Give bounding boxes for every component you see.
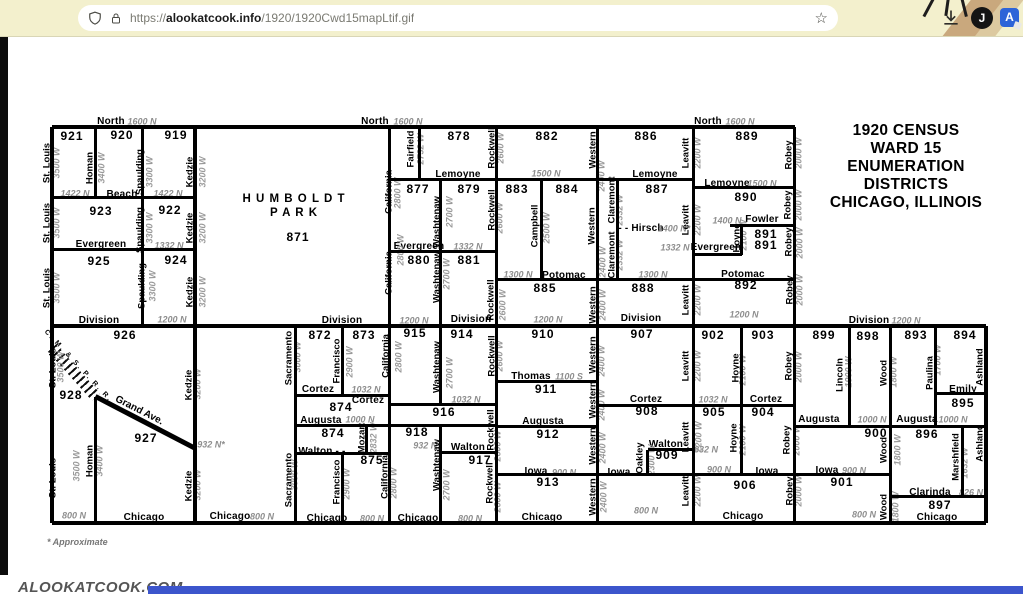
street-line <box>439 426 442 523</box>
coordinate-label: 1000 N <box>857 416 886 425</box>
district-number: 910 <box>531 328 554 340</box>
district-number: 893 <box>904 329 927 341</box>
park-label-line2: P A R K <box>243 206 346 220</box>
street-label: Fairfield <box>406 131 416 168</box>
street-line <box>495 127 498 523</box>
map-title-line: WARD 15 <box>830 140 982 158</box>
lock-icon <box>110 11 122 26</box>
street-line <box>388 127 391 523</box>
district-number: 896 <box>915 428 938 440</box>
street-line <box>891 495 986 498</box>
district-number: 897 <box>928 499 951 511</box>
url-bar[interactable]: https://alookatcook.info/1920/1920Cwd15m… <box>78 5 838 31</box>
street-label: Wood <box>879 437 889 463</box>
translate-icon[interactable]: A <box>1000 8 1019 27</box>
coordinate-label: 1332 N <box>660 244 689 253</box>
coordinate-label: 2600 W <box>499 289 508 320</box>
street-label: Leavitt <box>681 205 691 236</box>
map-title-line: CHICAGO, ILLINOIS <box>830 194 982 212</box>
street-line <box>341 454 344 523</box>
district-number: 874 <box>329 401 352 413</box>
street-line <box>936 392 986 395</box>
street-line <box>94 397 97 523</box>
coordinate-label: 2700 W <box>446 357 455 388</box>
coordinate-label: 2700 W <box>446 196 455 227</box>
street-line <box>50 127 54 523</box>
coordinate-label: 2400 W <box>599 289 608 320</box>
district-number: 902 <box>701 329 724 341</box>
street-line <box>141 127 144 326</box>
street-label: Wood <box>879 360 889 386</box>
street-label: Campbell <box>530 205 540 248</box>
street-line <box>740 226 743 255</box>
star-icon[interactable]: ☆ <box>815 11 828 26</box>
street-line <box>848 326 851 427</box>
coordinate-label: 2832 W <box>370 422 379 453</box>
street-line <box>497 380 598 383</box>
coordinate-label: 3200 W <box>199 156 208 187</box>
street-label: Wood <box>879 494 889 520</box>
district-number: 918 <box>405 426 428 438</box>
coordinate-label: 3200 W <box>199 212 208 243</box>
street-label: Leavitt <box>681 351 691 382</box>
coordinate-label: 2900 W <box>346 346 355 377</box>
coordinate-label: 2000 W <box>796 227 805 258</box>
district-number: 928 <box>59 389 82 401</box>
coordinate-label: 932 N* <box>197 441 225 450</box>
profile-avatar[interactable]: J <box>971 7 993 29</box>
street-line <box>598 404 795 407</box>
street-line <box>94 127 97 198</box>
district-number: 871 <box>286 231 309 243</box>
street-line <box>740 326 743 475</box>
district-number: 912 <box>536 428 559 440</box>
street-line <box>692 127 695 523</box>
district-number: 878 <box>447 130 470 142</box>
district-number: 877 <box>406 183 429 195</box>
street-label: Cortez <box>352 396 384 406</box>
district-number: 911 <box>535 383 557 395</box>
street-label: Robey <box>782 425 792 454</box>
district-number: 887 <box>645 183 668 195</box>
street-line <box>934 326 937 427</box>
decorative-mark <box>923 0 937 17</box>
district-number: 904 <box>751 406 774 418</box>
coordinate-label: 1200 N <box>729 311 758 320</box>
map-title: 1920 CENSUSWARD 15ENUMERATIONDISTRICTSCH… <box>830 122 982 212</box>
street-line <box>52 125 795 129</box>
district-number: 882 <box>535 130 558 142</box>
street-line <box>439 180 442 405</box>
coordinate-label: 2700 W <box>443 258 452 289</box>
district-number: 889 <box>735 130 758 142</box>
coordinate-label: 1800 W <box>894 434 903 465</box>
coordinate-label: 2400 W <box>599 246 608 277</box>
district-number: 905 <box>702 406 725 418</box>
street-line <box>52 248 195 251</box>
street-line <box>418 127 421 180</box>
coordinate-label: 2400 W <box>600 481 609 512</box>
coordinate-label: 2800 W <box>394 177 403 208</box>
district-number: 921 <box>60 130 83 142</box>
street-line <box>441 451 497 454</box>
district-number: 891 <box>754 239 777 251</box>
url-domain: alookatcook.info <box>166 11 261 25</box>
map-title-line: DISTRICTS <box>830 176 982 194</box>
coordinate-label: 800 N <box>634 507 658 516</box>
street-line <box>961 427 964 497</box>
street-line <box>294 326 297 523</box>
coordinate-label: 3300 W <box>146 156 155 187</box>
district-number: 901 <box>830 476 853 488</box>
street-line <box>193 127 197 523</box>
street-label: Leavitt <box>681 285 691 316</box>
coordinate-label: 3300 W <box>146 212 155 243</box>
district-number: 890 <box>734 191 757 203</box>
coordinate-label: 2000 W <box>796 274 805 305</box>
district-number: 895 <box>951 397 974 409</box>
street-line <box>497 425 598 428</box>
coordinate-label: 3300 W <box>149 270 158 301</box>
street-label: Augusta <box>798 415 839 425</box>
district-number: 886 <box>634 130 657 142</box>
district-number: 926 <box>113 329 136 341</box>
street-label: Robey <box>783 190 793 219</box>
coordinate-label: 3400 W <box>98 152 107 183</box>
coordinate-label: 2700 W <box>443 469 452 500</box>
street-label: Oakley <box>635 442 645 473</box>
district-number: 874 <box>321 427 344 439</box>
district-number: 916 <box>432 406 455 418</box>
district-number: 920 <box>110 129 133 141</box>
district-number: 915 <box>403 327 426 339</box>
url-path: /1920/1920Cwd15mapLtif.gif <box>261 11 414 25</box>
street-line <box>793 127 796 523</box>
street-line <box>648 448 694 451</box>
district-number: 888 <box>631 282 654 294</box>
census-map: 1920 CENSUSWARD 15ENUMERATIONDISTRICTSCH… <box>0 0 1023 594</box>
street-line <box>341 326 344 396</box>
coordinate-label: 2400 W <box>599 432 608 463</box>
street-line <box>365 426 368 454</box>
street-label: Division <box>621 314 662 324</box>
coordinate-label: 2500 W <box>543 212 552 243</box>
street-line <box>889 326 892 523</box>
district-number: 873 <box>352 329 375 341</box>
street-line <box>646 450 649 475</box>
street-line <box>694 253 742 256</box>
district-number: 884 <box>555 183 578 195</box>
street-line <box>390 403 497 406</box>
district-number: 880 <box>407 254 430 266</box>
district-number: 927 <box>134 432 157 444</box>
district-number: 885 <box>533 282 556 294</box>
street-label: Leavitt <box>681 138 691 169</box>
map-title-line: 1920 CENSUS <box>830 122 982 140</box>
district-number: 899 <box>812 329 835 341</box>
coordinate-label: 2200 W <box>695 421 704 452</box>
street-line <box>616 180 619 280</box>
map-title-line: ENUMERATION <box>830 158 982 176</box>
district-number: 914 <box>450 328 473 340</box>
coordinate-label: 3500 W <box>73 450 82 481</box>
district-number: 925 <box>87 255 110 267</box>
park-label-line1: H U M B O L D T <box>243 192 346 206</box>
coordinate-label: 3200 W <box>199 276 208 307</box>
district-number: 919 <box>164 129 187 141</box>
district-number: 913 <box>536 476 559 488</box>
coordinate-label: 2800 W <box>395 341 404 372</box>
district-number: 872 <box>308 329 331 341</box>
district-number: 879 <box>457 183 480 195</box>
url-scheme: https:// <box>130 11 166 25</box>
street-line <box>596 127 599 523</box>
coordinate-label: 800 N <box>62 512 86 521</box>
district-number: 906 <box>733 479 756 491</box>
street-line <box>694 186 795 189</box>
street-line <box>540 180 543 280</box>
coordinate-label: 1000 N <box>938 416 967 425</box>
browser-toolbar: https://alookatcook.info/1920/1920Cwd15m… <box>0 0 1023 37</box>
street-label: Augusta <box>896 415 937 425</box>
street-line <box>296 424 497 427</box>
district-number: 898 <box>856 330 879 342</box>
street-line <box>52 196 195 199</box>
park-label: H U M B O L D T P A R K <box>243 192 346 220</box>
street-line <box>984 326 988 523</box>
district-number: 883 <box>505 183 528 195</box>
district-number: 907 <box>630 328 653 340</box>
district-number: 923 <box>89 205 112 217</box>
district-number: 894 <box>953 329 976 341</box>
browser-window: https://alookatcook.info/1920/1920Cwd15m… <box>0 0 1023 594</box>
street-label: Leavitt <box>681 476 691 507</box>
district-number: 881 <box>457 254 480 266</box>
street-line <box>390 250 497 253</box>
shield-icon <box>88 10 102 26</box>
coordinate-label: 800 N <box>852 511 876 520</box>
district-number: 924 <box>164 254 187 266</box>
district-number: 922 <box>158 204 181 216</box>
district-number: 903 <box>751 329 774 341</box>
